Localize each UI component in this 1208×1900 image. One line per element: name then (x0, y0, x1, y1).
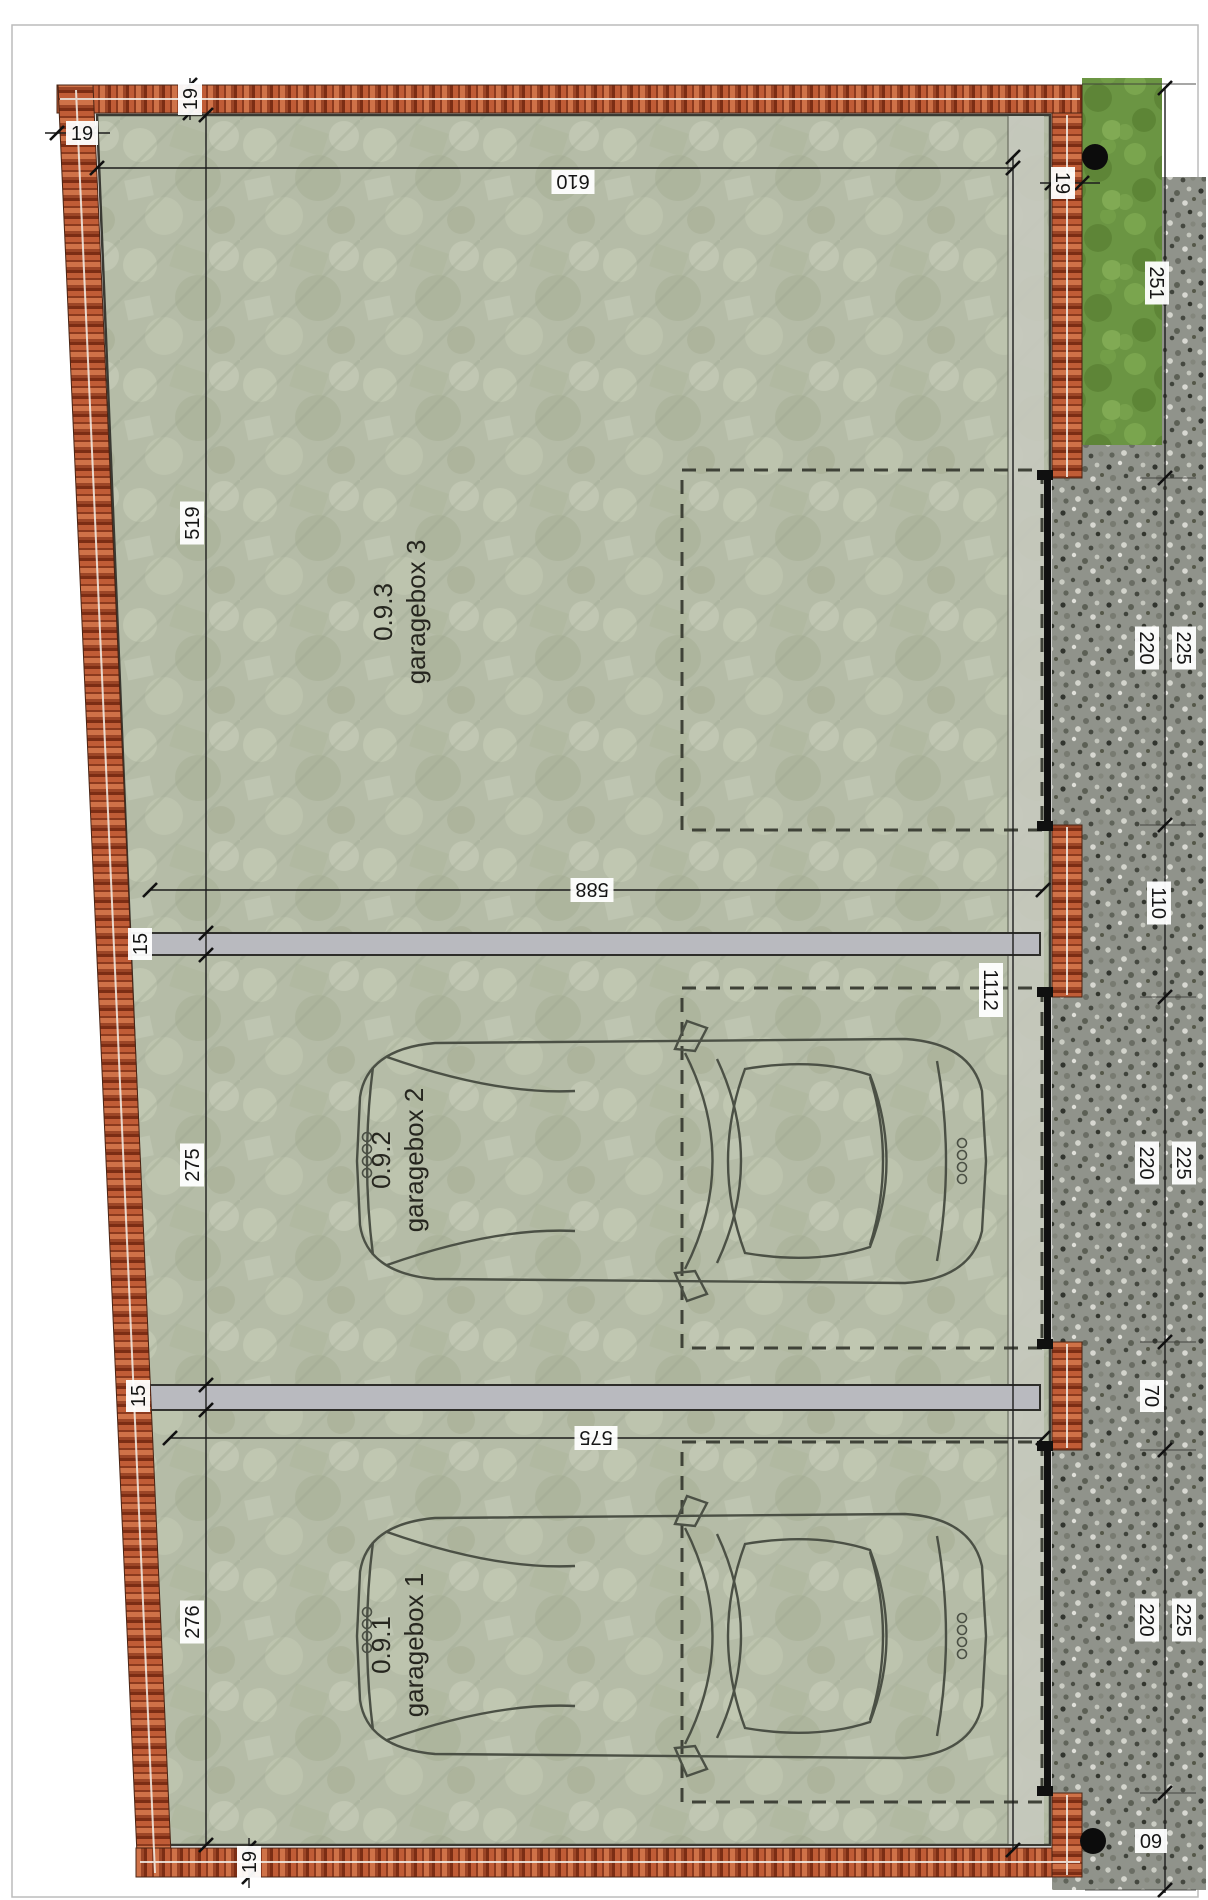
garage-number: 0.9.2 (366, 1131, 396, 1189)
dim-label-15: 15 (128, 928, 152, 960)
dim-label-text: 575 (579, 1426, 612, 1448)
dim-label-text: 70 (1140, 1385, 1162, 1407)
dim-label-19: 19 (66, 121, 98, 145)
garage-name: garagebox 1 (399, 1573, 429, 1718)
dim-label-575: 575 (575, 1426, 618, 1450)
door-garage2 (1044, 997, 1051, 1346)
dim-label-70: 70 (1140, 1380, 1164, 1412)
dim-label-610: 610 (552, 170, 595, 194)
dim-label-519: 519 (180, 502, 204, 545)
dim-label-220: 220 (1135, 1599, 1159, 1642)
dim-label-text: 220 (1135, 631, 1157, 664)
garage-name: garagebox 3 (401, 540, 431, 685)
dim-label-text: 225 (1172, 631, 1194, 664)
dim-label-text: 60 (1140, 1829, 1162, 1851)
garage-number: 0.9.3 (368, 583, 398, 641)
dim-label-19: 19 (178, 83, 202, 115)
dim-label-text: 15 (130, 933, 152, 955)
dim-label-text: 275 (182, 1148, 204, 1181)
dim-label-60: 60 (1135, 1829, 1167, 1853)
dim-label-text: 225 (1172, 1603, 1194, 1636)
site-dot-bottom (1080, 1828, 1106, 1854)
dim-label-220: 220 (1135, 1142, 1159, 1185)
floorplan: 6105885755192752761515191919192512202251… (0, 0, 1208, 1900)
dim-label-text: 19 (71, 123, 93, 145)
dim-label-text: 15 (128, 1385, 150, 1407)
dim-label-text: 225 (1172, 1146, 1194, 1179)
dim-label-588: 588 (571, 878, 614, 902)
dim-label-19: 19 (237, 1846, 261, 1878)
dim-label-text: 1112 (979, 969, 1001, 1011)
door-garage1 (1044, 1450, 1051, 1795)
dim-label-text: 519 (182, 506, 204, 539)
dim-label-text: 220 (1135, 1146, 1157, 1179)
dim-label-225: 225 (1172, 1142, 1196, 1185)
dim-label-text: 220 (1135, 1603, 1157, 1636)
dim-label-225: 225 (1172, 627, 1196, 670)
divider-wall-2 (148, 1385, 1040, 1410)
dim-label-text: 110 (1147, 887, 1169, 919)
dim-label-text: 19 (239, 1851, 261, 1873)
dim-label-220: 220 (1135, 627, 1159, 670)
dim-label-19: 19 (1051, 167, 1075, 199)
divider-wall-1 (130, 933, 1040, 955)
garage-floor (97, 115, 1050, 1845)
dim-label-275: 275 (180, 1144, 204, 1187)
dim-label-text: 251 (1145, 266, 1167, 299)
dim-label-text: 588 (575, 878, 608, 900)
door-garage3 (1044, 478, 1051, 828)
dim-label-15: 15 (126, 1380, 150, 1412)
dim-label-text: 610 (556, 170, 589, 192)
floorplan-svg: 6105885755192752761515191919192512202251… (0, 0, 1208, 1900)
dim-label-276: 276 (180, 1601, 204, 1644)
site-dot-top (1082, 144, 1108, 170)
dim-label-251: 251 (1145, 262, 1169, 305)
dim-label-110: 110 (1147, 882, 1171, 925)
dim-label-text: 19 (180, 88, 202, 110)
dim-label-text: 276 (182, 1605, 204, 1638)
garage-number: 0.9.1 (366, 1616, 396, 1674)
dim-label-225: 225 (1172, 1599, 1196, 1642)
dim-label-text: 19 (1051, 172, 1073, 194)
dim-label-1112: 1112 (979, 963, 1003, 1017)
garage-name: garagebox 2 (399, 1088, 429, 1233)
